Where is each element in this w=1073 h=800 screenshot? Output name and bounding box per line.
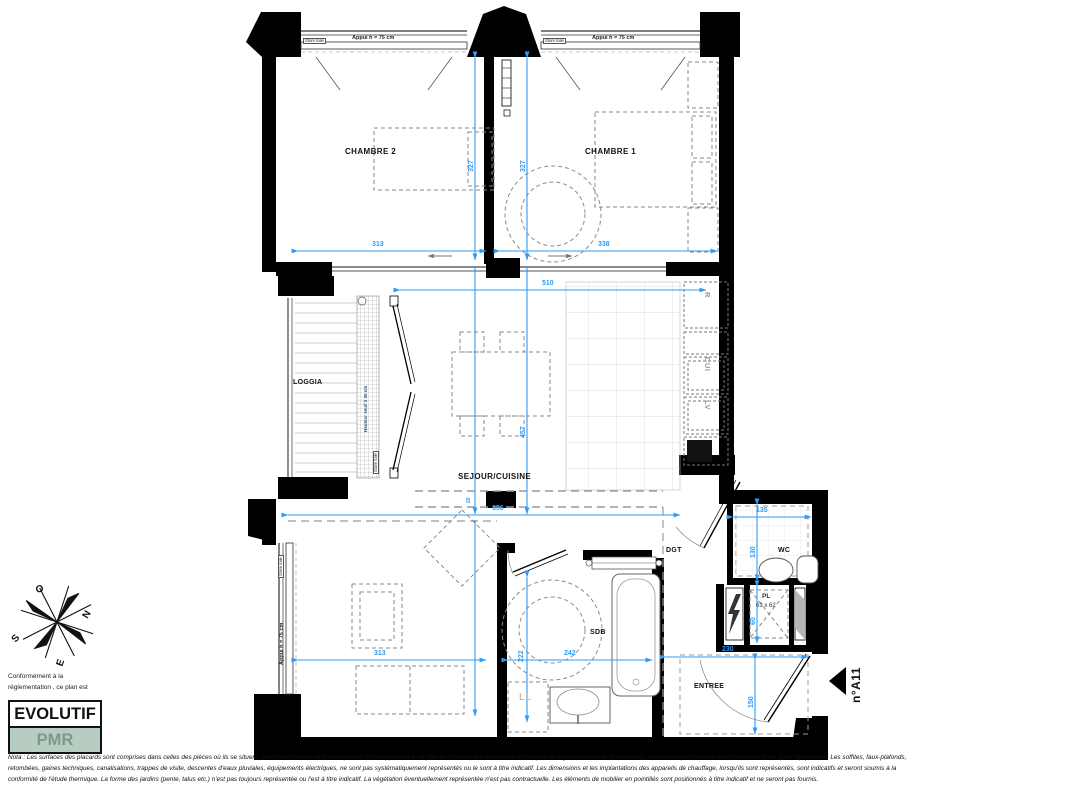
lot-number-label: n°A11: [850, 667, 862, 703]
store-toile-tag-left: Store toile: [303, 38, 326, 44]
room-label-wc: WC: [778, 547, 790, 554]
dim-beam: 20: [467, 497, 472, 503]
appui-label-bottom-window: Appui h = 75 cm: [280, 623, 286, 665]
pmr-label: PMR: [10, 726, 100, 752]
room-label-entree: ENTREE: [694, 683, 724, 690]
compass-rose: [9, 574, 105, 670]
appui-label-right-window: Appui h = 75 cm: [592, 36, 634, 42]
room-label-loggia: LOGGIA: [293, 379, 322, 386]
nota-line3: conformité de l'étude thermique. La form…: [8, 777, 818, 783]
kitchen: [566, 282, 728, 490]
radiator-sdb: [586, 557, 662, 569]
floorplan-page: CHAMBRE 2 CHAMBRE 1 LOGGIA SEJOUR/CUISIN…: [0, 0, 1073, 800]
dim-chambre2-depth: 327: [468, 160, 475, 172]
dim-sejour-depth: 457: [520, 426, 527, 438]
dim-sejour-total-width: 656: [492, 505, 504, 512]
room-label-sdb: SDB: [590, 629, 606, 636]
lot-marker-triangle: [829, 667, 846, 695]
dim-pl-depth: 60: [750, 617, 757, 625]
dim-wc-width: 135: [756, 507, 768, 514]
appliance-label-ll: LL: [519, 693, 532, 703]
dim-sejour-width: 510: [542, 280, 554, 287]
dim-chambre2-width: 313: [372, 241, 384, 248]
room-label-dgt: DGT: [666, 547, 682, 554]
nota-line1: Nota : Les surfaces des placards sont co…: [8, 755, 906, 761]
dim-entree-width: 230: [722, 646, 734, 653]
appliance-label-pl: PL: [762, 594, 770, 601]
nota-line2: retombées, gaines techniques, canalisati…: [8, 766, 896, 772]
floorplan-drawing: [0, 0, 1073, 800]
room-label-sejour: SEJOUR/CUISINE: [458, 473, 531, 481]
radiator-bedrooms: [502, 60, 511, 116]
dim-chambre1-width: 338: [598, 241, 610, 248]
appliance-label-cui: CUI: [704, 357, 712, 371]
appliance-label-r: R: [704, 292, 712, 298]
placard-size-label: 63 x 62: [756, 603, 776, 609]
seuil-label-loggia: Hauteur seuil à 35 cm: [364, 386, 369, 432]
legend-intro-line2: réglementation , ce plan est: [8, 685, 88, 692]
store-toile-tag-right: Store toile: [543, 38, 566, 44]
store-toile-tag-bottom: Store toile: [278, 555, 284, 578]
dim-sdb-width: 242: [564, 650, 576, 657]
dim-sdb-depth: 222: [518, 650, 525, 662]
bathroom-fixtures: [550, 574, 660, 724]
appliance-label-lv: LV: [704, 400, 712, 410]
dim-salon-width: 313: [374, 650, 386, 657]
store-toile-tag-loggia: Store toile: [373, 451, 379, 474]
dim-wc-depth: 130: [750, 546, 757, 558]
dim-entree-depth: 150: [748, 696, 755, 708]
legend-intro-line1: Conformément à la: [8, 674, 63, 681]
legend-box: EVOLUTIF PMR: [8, 700, 102, 754]
dim-chambre1-depth: 327: [520, 160, 527, 172]
appui-label-left-window: Appui h = 75 cm: [352, 36, 394, 42]
loggia-structure: [288, 296, 415, 478]
room-label-chambre2: CHAMBRE 2: [345, 148, 396, 156]
room-label-chambre1: CHAMBRE 1: [585, 148, 636, 156]
evolutif-label: EVOLUTIF: [10, 702, 100, 726]
wc-fixtures: [733, 504, 818, 583]
